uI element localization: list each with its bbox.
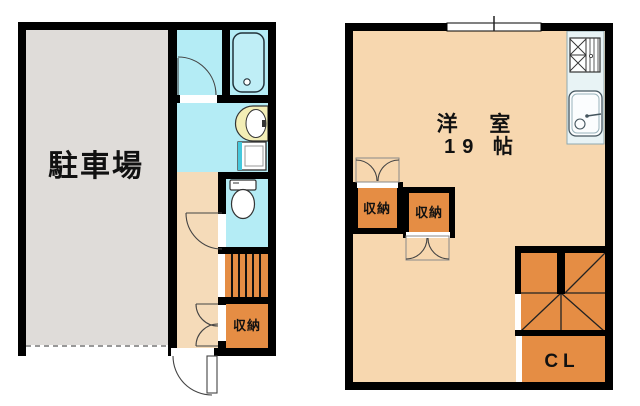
- entrance-door: [173, 356, 217, 395]
- closet-label: CL: [544, 351, 579, 372]
- room-name-label: 洋 室: [437, 112, 524, 136]
- door-arc: [173, 356, 212, 395]
- kitchen-counter: [567, 31, 604, 144]
- floor2-plan: CL 洋 室 19 帖 収納 収納: [345, 16, 613, 390]
- parking-label: 駐車場: [48, 150, 144, 183]
- wall: [168, 22, 177, 356]
- winder-stairs: [515, 246, 605, 332]
- faucet: [262, 120, 266, 127]
- tub-drain: [244, 79, 250, 85]
- wall: [345, 382, 613, 390]
- room-size-label: 19 帖: [444, 135, 520, 158]
- hallway-floor: [177, 172, 218, 348]
- wall: [222, 30, 230, 95]
- door-opening: [218, 214, 226, 247]
- window: [447, 16, 541, 31]
- wall: [18, 22, 276, 30]
- stair-entry-opening: [515, 294, 521, 332]
- floorplan-page: 駐車場 収納: [0, 0, 640, 406]
- closet-cl: CL: [515, 330, 605, 382]
- kitchen-sink-icon: [569, 91, 602, 136]
- washing-machine-icon: [238, 142, 266, 170]
- floor1-plan: 駐車場 収納: [18, 22, 276, 395]
- door-opening: [218, 305, 226, 341]
- door-opening: [171, 348, 214, 356]
- vanity-sink-icon: [236, 106, 269, 141]
- storage-label: 収納: [233, 318, 261, 333]
- wall: [515, 330, 605, 336]
- wall: [345, 23, 353, 390]
- door-opening: [406, 232, 450, 238]
- parking-area: [26, 30, 168, 345]
- wall: [557, 246, 565, 294]
- door-opening: [180, 95, 217, 103]
- wall: [268, 22, 276, 356]
- toilet-icon: [230, 180, 256, 219]
- door-opening: [516, 336, 522, 382]
- floorplan-canvas: 駐車場 収納: [0, 0, 640, 406]
- stove-icon: [570, 38, 600, 72]
- wall: [18, 22, 26, 356]
- door-opening: [357, 182, 398, 188]
- storage-label: 収納: [363, 201, 391, 216]
- faucet-knob: [585, 114, 589, 118]
- wall: [218, 247, 268, 254]
- wall: [605, 23, 613, 390]
- storage-label: 収納: [415, 205, 443, 220]
- bathtub-icon: [233, 33, 264, 92]
- wall: [515, 246, 521, 294]
